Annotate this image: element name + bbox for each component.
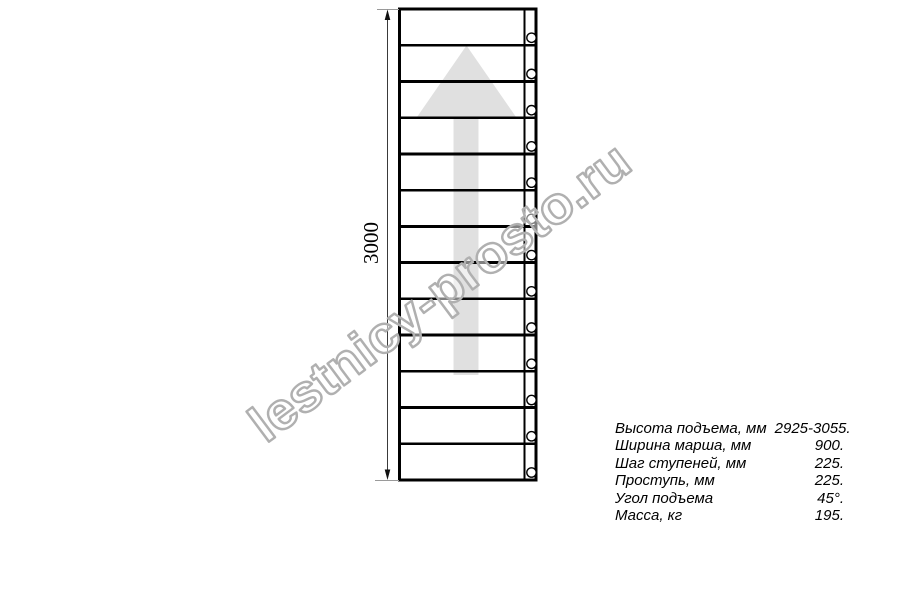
- spec-label: Шаг ступеней, мм: [615, 455, 746, 472]
- spec-value: 900.: [807, 437, 844, 454]
- spec-label: Ширина марша, мм: [615, 437, 751, 454]
- dimension-arrowhead-up: [385, 10, 391, 21]
- spec-value: 195.: [807, 507, 844, 524]
- spec-row: Шаг ступеней, мм225.: [615, 455, 844, 472]
- spec-row: Высота подъема, мм2925-3055.: [615, 420, 844, 437]
- bolt-circle: [527, 468, 536, 477]
- bolt-circle: [527, 359, 536, 368]
- bolt-circle: [527, 69, 536, 78]
- bolt-circle: [527, 142, 536, 151]
- bolt-circle: [527, 323, 536, 332]
- bolt-circle: [527, 105, 536, 114]
- bolt-circle: [527, 33, 536, 42]
- spec-label: Высота подъема, мм: [615, 420, 767, 437]
- spec-row: Проступь, мм225.: [615, 472, 844, 489]
- spec-value: 225.: [807, 455, 844, 472]
- spec-label: Угол подъема: [615, 490, 713, 507]
- watermark-text: lestnicy-prosto.ru: [238, 132, 641, 454]
- spec-row: Ширина марша, мм900.: [615, 437, 844, 454]
- dimension-3000: 3000: [359, 10, 399, 481]
- spec-value: 2925-3055.: [767, 420, 851, 437]
- bolt-circle: [527, 432, 536, 441]
- bolt-circle: [527, 395, 536, 404]
- spec-label: Масса, кг: [615, 507, 682, 524]
- spec-value: 225.: [807, 472, 844, 489]
- spec-value: 45°.: [809, 490, 844, 507]
- dimension-label: 3000: [359, 222, 383, 264]
- spec-row: Масса, кг195.: [615, 507, 844, 524]
- page: 3000 lestnicy-prosto.ru Высота подъема, …: [0, 0, 900, 600]
- spec-row: Угол подъема45°.: [615, 490, 844, 507]
- spec-label: Проступь, мм: [615, 472, 715, 489]
- spec-table: Высота подъема, мм2925-3055.Ширина марша…: [615, 420, 844, 524]
- dimension-arrowhead-down: [385, 470, 391, 481]
- bolt-circle: [527, 287, 536, 296]
